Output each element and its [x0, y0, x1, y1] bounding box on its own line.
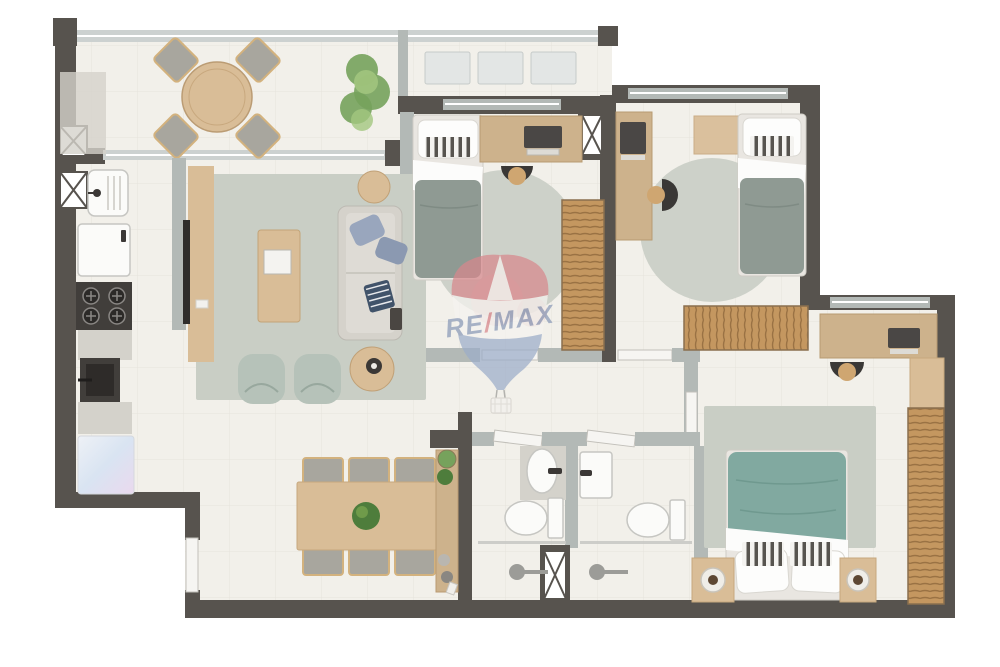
bath-wall-b	[542, 432, 587, 446]
dining-chair	[303, 548, 343, 575]
striped-cushion	[790, 542, 832, 566]
dining-chair	[349, 548, 389, 575]
bath-wall-a	[472, 432, 494, 446]
dining-chair	[395, 458, 435, 485]
duvet	[740, 178, 804, 274]
striped-cushion	[425, 137, 471, 157]
wardrobe	[908, 408, 944, 604]
double-bed	[726, 450, 848, 600]
striped-cushion	[742, 542, 784, 566]
bath-divider-wall	[565, 446, 578, 548]
laptop-keyboard	[621, 155, 645, 160]
balcony-round-table	[182, 62, 252, 132]
faucet	[93, 189, 101, 197]
faucet	[548, 468, 562, 474]
sideboard-plant	[438, 450, 456, 468]
refrigerator	[78, 436, 134, 494]
bath-wall-c	[635, 432, 700, 446]
laptop-keyboard	[527, 149, 559, 155]
ledge-mullion	[398, 30, 408, 96]
cabinet	[910, 358, 944, 408]
armchair	[294, 354, 341, 404]
wardrobe	[684, 306, 808, 350]
console-decor	[196, 300, 208, 308]
sideboard-wall	[458, 412, 472, 602]
nightstand-left	[692, 558, 734, 602]
entry-wall-upper	[185, 492, 200, 540]
laptop	[888, 328, 920, 348]
toilet	[505, 498, 563, 538]
faucet	[580, 470, 592, 476]
dining-chair	[349, 458, 389, 485]
shower-glass	[580, 541, 692, 544]
ac-unit	[478, 52, 523, 84]
technical-ledge	[425, 52, 576, 84]
striped-cushion	[750, 136, 794, 156]
sofa-tray	[390, 308, 402, 330]
ac-unit	[425, 52, 470, 84]
entry-door	[186, 538, 198, 592]
floorplan-render: RE/MAX	[0, 0, 1000, 667]
wardrobe	[562, 200, 604, 350]
tv-console	[188, 166, 214, 362]
single-bed	[413, 115, 483, 280]
bedroom2-door	[618, 350, 672, 360]
side-table-small	[358, 171, 390, 203]
coffee-table	[258, 230, 300, 322]
decor	[441, 571, 453, 583]
sofa	[338, 206, 409, 340]
table-tray	[264, 250, 291, 274]
nightstand-right	[840, 558, 876, 602]
decor	[438, 554, 450, 566]
dining-room	[297, 450, 458, 595]
tv	[183, 220, 190, 324]
laptop	[620, 122, 646, 154]
corner-post	[598, 26, 618, 46]
ac-unit	[531, 52, 576, 84]
dining-chair	[395, 548, 435, 575]
dining-chair	[303, 458, 343, 485]
counter	[78, 402, 132, 434]
cooktop	[76, 282, 132, 330]
floorplan-canvas: RE/MAX	[0, 0, 1000, 667]
toilet	[627, 500, 685, 540]
sideboard	[436, 450, 458, 595]
wall-shelf	[694, 116, 740, 154]
sideboard-plant	[437, 469, 453, 485]
counter	[78, 330, 132, 360]
armchair	[238, 354, 285, 404]
laptop	[524, 126, 562, 148]
single-bed	[738, 114, 806, 276]
laptop-keyboard	[890, 349, 918, 354]
floor-mat	[60, 72, 106, 154]
living-room	[172, 158, 426, 404]
shower-glass	[478, 541, 566, 544]
